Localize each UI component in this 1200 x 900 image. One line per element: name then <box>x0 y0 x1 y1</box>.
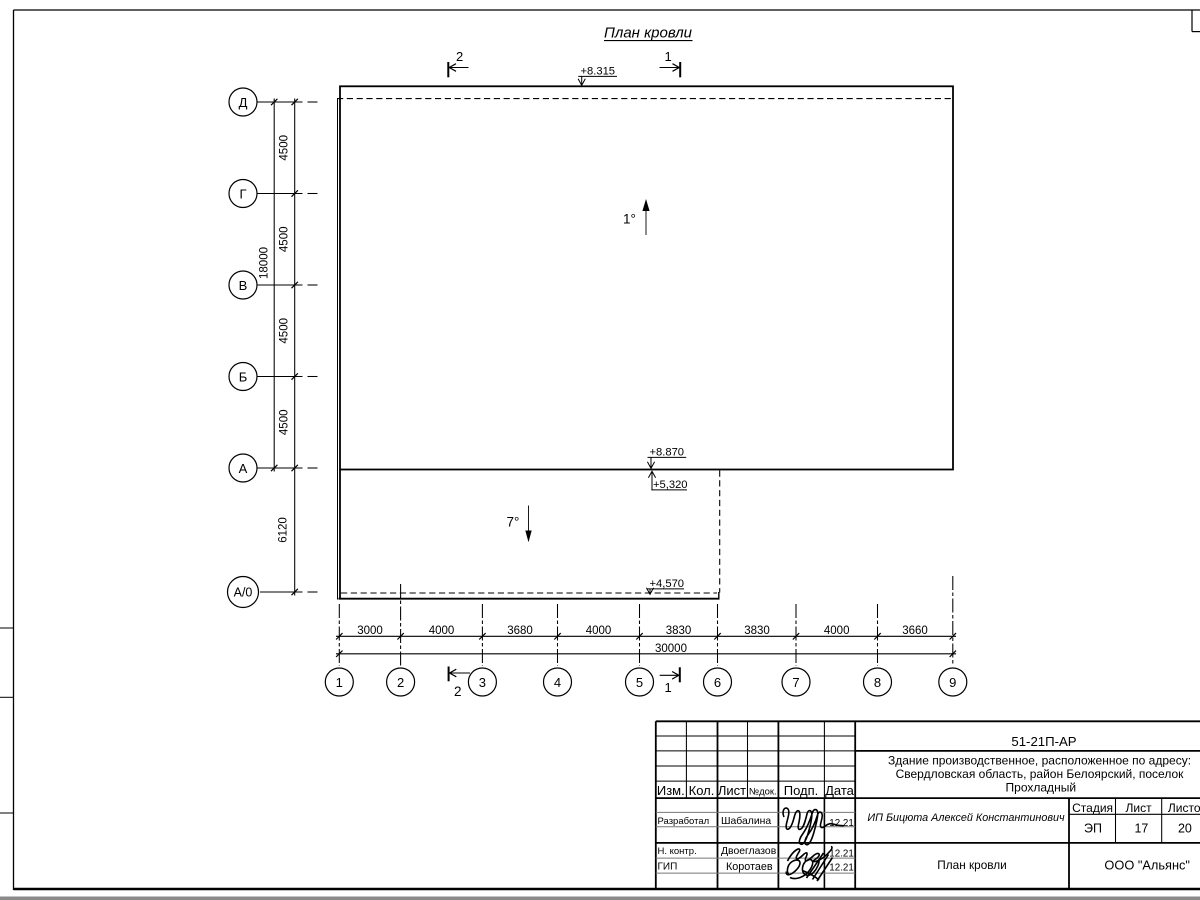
svg-text:+8.870: +8.870 <box>650 447 685 459</box>
svg-text:+5,320: +5,320 <box>653 479 688 491</box>
svg-text:А/0: А/0 <box>234 586 253 600</box>
svg-text:+8.315: +8.315 <box>581 65 616 77</box>
svg-text:Дата: Дата <box>825 783 855 798</box>
svg-text:ЭП: ЭП <box>1084 822 1102 836</box>
svg-text:4500: 4500 <box>279 410 291 436</box>
svg-text:4500: 4500 <box>279 318 291 344</box>
svg-text:Стадия: Стадия <box>1072 801 1113 815</box>
svg-text:1: 1 <box>665 680 672 695</box>
svg-text:2: 2 <box>456 49 463 64</box>
svg-text:4500: 4500 <box>279 227 291 253</box>
svg-text:4000: 4000 <box>429 625 455 637</box>
svg-text:5: 5 <box>636 675 643 690</box>
svg-text:ООО "Альянс": ООО "Альянс" <box>1104 857 1190 872</box>
svg-text:Здание производственное, распо: Здание производственное, расположенное п… <box>888 753 1191 767</box>
svg-text:+4,570: +4,570 <box>650 578 685 590</box>
svg-text:6120: 6120 <box>277 517 289 543</box>
svg-text:18000: 18000 <box>259 247 271 279</box>
svg-text:План кровли: План кровли <box>604 25 693 42</box>
svg-text:20: 20 <box>1178 822 1192 836</box>
svg-text:В: В <box>239 278 248 293</box>
svg-text:3830: 3830 <box>666 625 692 637</box>
svg-text:7°: 7° <box>507 515 520 530</box>
svg-text:Г: Г <box>239 186 246 201</box>
svg-text:Разработал: Разработал <box>658 816 710 827</box>
svg-text:3830: 3830 <box>744 625 770 637</box>
svg-text:Коротаев: Коротаев <box>726 861 773 873</box>
svg-text:3000: 3000 <box>357 625 383 637</box>
svg-text:51-21П-АР: 51-21П-АР <box>1011 734 1076 749</box>
svg-text:12.21: 12.21 <box>829 863 854 874</box>
svg-text:Б: Б <box>239 369 248 384</box>
svg-text:Лист: Лист <box>1126 801 1153 815</box>
svg-text:Н. контр.: Н. контр. <box>658 846 697 857</box>
svg-text:3680: 3680 <box>507 625 533 637</box>
svg-text:ИП Бицюта Алексей Константинов: ИП Бицюта Алексей Константинович <box>867 812 1065 824</box>
svg-text:Подп.: Подп. <box>784 783 819 798</box>
svg-text:План кровли: План кровли <box>937 858 1006 872</box>
svg-text:4000: 4000 <box>824 625 850 637</box>
svg-text:Кол.: Кол. <box>689 783 715 798</box>
svg-text:Свердловская область, район Бе: Свердловская область, район Белоярский, … <box>896 767 1185 781</box>
svg-text:30000: 30000 <box>655 643 687 655</box>
svg-text:3: 3 <box>479 675 486 690</box>
svg-text:Д: Д <box>239 95 248 110</box>
svg-text:А: А <box>239 461 248 476</box>
svg-text:4000: 4000 <box>586 625 612 637</box>
svg-text:ГИП: ГИП <box>658 862 678 873</box>
svg-text:Шабалина: Шабалина <box>721 815 771 827</box>
svg-text:9: 9 <box>949 675 956 690</box>
svg-text:1°: 1° <box>623 212 636 227</box>
svg-text:Изм.: Изм. <box>657 783 685 798</box>
svg-text:3660: 3660 <box>902 625 928 637</box>
svg-text:1: 1 <box>336 675 343 690</box>
svg-text:2: 2 <box>397 675 404 690</box>
svg-text:Лист: Лист <box>718 783 746 798</box>
svg-text:Листов: Листов <box>1168 801 1200 815</box>
svg-text:6: 6 <box>714 675 721 690</box>
svg-text:4: 4 <box>554 675 561 690</box>
svg-text:2: 2 <box>454 684 462 699</box>
svg-text:№док.: №док. <box>749 786 777 797</box>
svg-text:8: 8 <box>874 675 881 690</box>
svg-text:17: 17 <box>1134 822 1148 836</box>
svg-text:7: 7 <box>792 675 799 690</box>
svg-text:Прохладный: Прохладный <box>1006 781 1076 795</box>
svg-text:1: 1 <box>665 49 672 64</box>
svg-text:4500: 4500 <box>279 135 291 161</box>
svg-text:Двоеглазов: Двоеглазов <box>721 846 777 857</box>
